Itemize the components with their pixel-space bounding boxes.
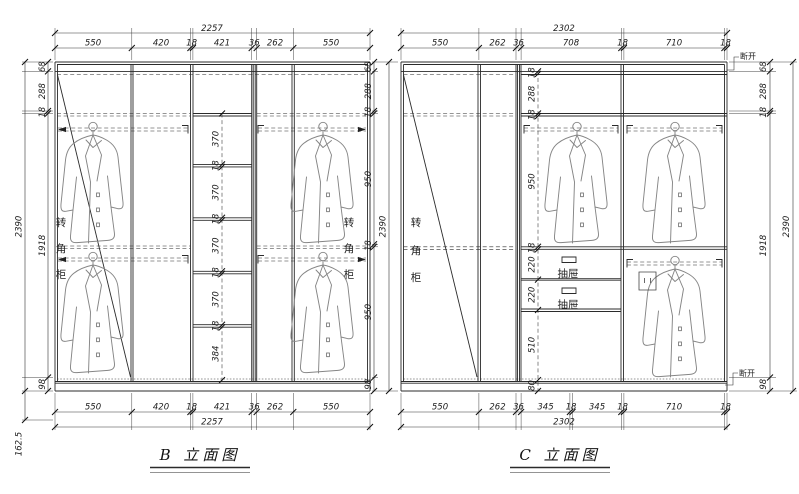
corner-cabinet-char: 柜 bbox=[411, 271, 422, 284]
wardrobe-elevation-drawing: 2257 550 420 18 421 36 262 550 550 420 1… bbox=[0, 0, 799, 494]
dim-label: 18 bbox=[186, 39, 197, 49]
dim-label: 420 bbox=[153, 403, 169, 413]
hanging-rods-c bbox=[524, 126, 722, 268]
wardrobe-b-structure bbox=[55, 62, 370, 391]
title-c: C 立面图 bbox=[510, 446, 610, 473]
corner-cabinet-char: 柜 bbox=[344, 268, 355, 281]
dim-label: 710 bbox=[666, 403, 682, 413]
dim-label: 18 bbox=[212, 267, 222, 278]
dim-label: 370 bbox=[212, 237, 222, 253]
break-label: 断开 bbox=[740, 51, 756, 61]
dim-label: 550 bbox=[432, 39, 448, 49]
dim-label: 18 bbox=[212, 320, 222, 331]
corner-cabinet-label-b-left: 转 角 柜 bbox=[56, 216, 67, 281]
dim-labels-b-center: 370 18 370 18 370 18 370 18 384 bbox=[212, 131, 222, 362]
dim-label: 950 bbox=[364, 171, 374, 187]
corner-diagonal-b bbox=[58, 75, 131, 377]
dim-label: 36 bbox=[513, 39, 524, 49]
dim-label: 18 bbox=[364, 240, 374, 251]
dim-label: 262 bbox=[489, 39, 505, 49]
dim-labels-b-top: 2257 550 420 18 421 36 262 550 bbox=[85, 24, 339, 49]
dim-label: 18 bbox=[617, 39, 628, 49]
dim-labels-c-center: 18 288 18 950 18 220 220 510 80 bbox=[528, 67, 538, 391]
dim-label: 18 bbox=[566, 403, 577, 413]
dim-label: 98 bbox=[364, 378, 374, 389]
dim-label: 68 bbox=[38, 61, 48, 72]
dim-labels-b-left: 68 288 18 1918 98 2390 162.5 bbox=[15, 61, 49, 456]
dim-label: 262 bbox=[267, 403, 283, 413]
dim-label: 18 bbox=[528, 67, 538, 78]
dim-label: 220 bbox=[528, 287, 538, 303]
socket-symbol bbox=[639, 272, 656, 290]
dim-label: 710 bbox=[666, 39, 682, 49]
dim-label: 18 bbox=[720, 403, 731, 413]
dim-label: 345 bbox=[537, 403, 553, 413]
corner-cabinet-char: 角 bbox=[344, 243, 355, 255]
dim-label: 1918 bbox=[38, 234, 48, 256]
dim-labels-b-bottom: 550 420 18 421 36 262 550 2257 bbox=[85, 403, 339, 428]
coat-b-left-bottom bbox=[61, 252, 123, 373]
corner-cabinet-char: 角 bbox=[56, 243, 67, 255]
dim-label: 421 bbox=[214, 403, 230, 413]
corner-cabinet-label-c: 转 角 柜 bbox=[411, 216, 422, 284]
dim-labels-c-top: 2302 550 262 36 708 18 710 18 bbox=[432, 24, 732, 49]
dim-label: 420 bbox=[153, 39, 169, 49]
coat-c-right-top bbox=[643, 122, 705, 243]
corner-cabinet-char: 转 bbox=[344, 216, 355, 229]
dim-label: 36 bbox=[249, 39, 260, 49]
dim-label: 288 bbox=[364, 83, 374, 100]
break-label: 断开 bbox=[739, 368, 755, 378]
drawer-label: 抽屉 bbox=[558, 267, 579, 280]
dim-label: 950 bbox=[528, 173, 538, 189]
cad-canvas: 2257 550 420 18 421 36 262 550 550 420 1… bbox=[0, 0, 799, 494]
break-annotation-bottom: 断开 bbox=[725, 368, 755, 385]
dim-label: 2390 bbox=[379, 216, 389, 238]
dim-label: 950 bbox=[364, 304, 374, 320]
dim-label: 2302 bbox=[553, 418, 575, 428]
dim-label: 18 bbox=[364, 106, 374, 117]
dim-label: 262 bbox=[267, 39, 283, 49]
dim-label: 708 bbox=[563, 39, 580, 49]
coat-c-middle bbox=[545, 122, 607, 243]
dim-label: 550 bbox=[432, 403, 448, 413]
dim-label: 345 bbox=[589, 403, 605, 413]
dim-label: 370 bbox=[212, 291, 222, 307]
drawer-label: 抽屉 bbox=[558, 298, 579, 311]
dim-label: 2390 bbox=[15, 216, 25, 238]
panel-b-elevation: 2257 550 420 18 421 36 262 550 550 420 1… bbox=[15, 24, 399, 473]
dim-label: 550 bbox=[323, 39, 339, 49]
dim-label: 98 bbox=[38, 378, 48, 389]
dim-label: 370 bbox=[212, 184, 222, 200]
dim-label: 1918 bbox=[759, 234, 769, 256]
dim-label: 18 bbox=[759, 106, 769, 117]
dim-label: 2390 bbox=[782, 216, 792, 238]
title-b: B 立面图 bbox=[150, 446, 250, 473]
dim-label: 80 bbox=[528, 380, 538, 391]
dim-label: 2257 bbox=[201, 24, 223, 34]
corner-cabinet-char: 角 bbox=[411, 245, 422, 257]
corner-cabinet-label-b-right: 转 角 柜 bbox=[344, 216, 355, 281]
dim-label: 220 bbox=[528, 256, 538, 272]
dim-label: 550 bbox=[85, 403, 101, 413]
dim-label: 36 bbox=[513, 403, 524, 413]
corner-cabinet-char: 柜 bbox=[56, 268, 67, 281]
dim-label: 2257 bbox=[201, 418, 223, 428]
dim-label: 370 bbox=[212, 131, 222, 147]
dim-label: 68 bbox=[364, 61, 374, 72]
dim-label: 2302 bbox=[553, 24, 575, 34]
coat-c-right-bottom bbox=[643, 256, 705, 377]
dim-labels-c-right: 68 288 18 1918 98 2390 bbox=[759, 61, 792, 390]
drawer-labels-c: 抽屉 抽屉 bbox=[558, 267, 579, 311]
dim-label: 18 bbox=[186, 403, 197, 413]
corner-cabinet-char: 转 bbox=[56, 216, 67, 229]
dim-label: 36 bbox=[249, 403, 260, 413]
dim-label: 384 bbox=[212, 346, 222, 362]
dim-label: 510 bbox=[528, 337, 538, 353]
dim-label: 18 bbox=[38, 106, 48, 117]
corner-cabinet-char: 转 bbox=[411, 216, 422, 229]
dim-label: 18 bbox=[212, 213, 222, 224]
dim-label: 162.5 bbox=[15, 432, 25, 456]
dim-label: 98 bbox=[759, 378, 769, 389]
dim-label: 288 bbox=[528, 85, 538, 102]
dim-label: 68 bbox=[759, 61, 769, 72]
dim-label: 288 bbox=[759, 83, 769, 100]
dim-label: 18 bbox=[528, 242, 538, 253]
dim-label: 550 bbox=[85, 39, 101, 49]
dim-label: 262 bbox=[489, 403, 505, 413]
break-annotation-top: 断开 bbox=[727, 51, 756, 70]
panel-c-elevation: 断开 断开 2302 550 262 36 708 18 710 18 550 … bbox=[398, 24, 797, 473]
dim-label: 18 bbox=[617, 403, 628, 413]
coat-b-left-top bbox=[61, 122, 123, 243]
dim-label: 18 bbox=[528, 109, 538, 120]
panel-b-title: B 立面图 bbox=[159, 446, 241, 464]
dim-label: 421 bbox=[214, 39, 230, 49]
dim-label: 18 bbox=[720, 39, 731, 49]
dim-label: 550 bbox=[323, 403, 339, 413]
dim-label: 18 bbox=[212, 160, 222, 171]
panel-c-title: C 立面图 bbox=[519, 446, 600, 464]
dim-label: 288 bbox=[38, 83, 48, 100]
dim-labels-c-bottom: 550 262 36 345 18 345 18 710 18 2302 bbox=[432, 403, 732, 428]
